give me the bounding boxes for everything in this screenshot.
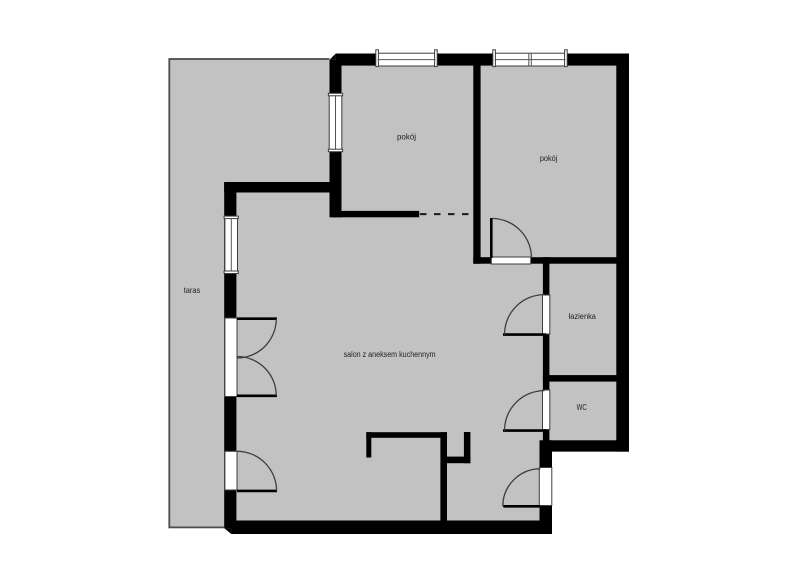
svg-text:WC: WC bbox=[577, 403, 587, 412]
svg-text:taras: taras bbox=[184, 286, 201, 295]
svg-text:salon z aneksem kuchennym: salon z aneksem kuchennym bbox=[344, 350, 436, 359]
svg-text:pokój: pokój bbox=[397, 132, 416, 141]
svg-text:łazienka: łazienka bbox=[569, 312, 597, 321]
svg-text:pokój: pokój bbox=[540, 154, 558, 163]
